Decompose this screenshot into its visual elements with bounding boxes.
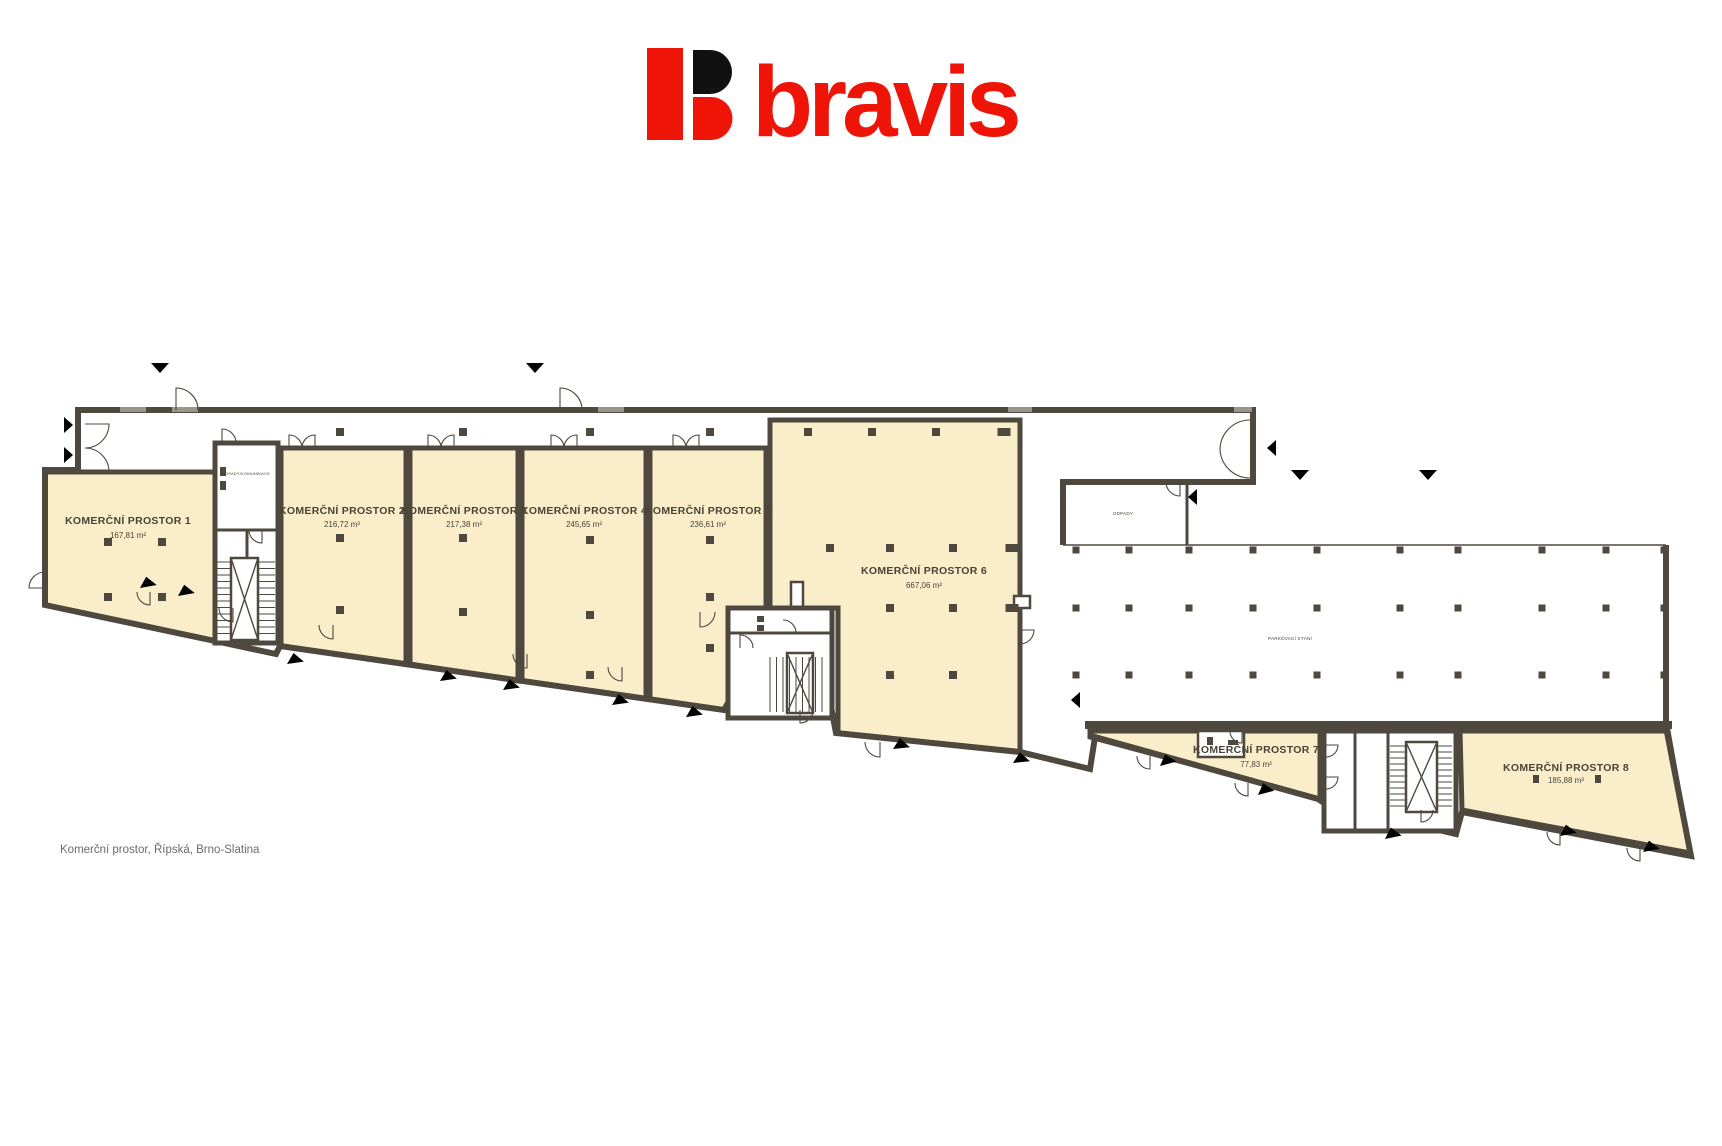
- wall-vent: [120, 407, 146, 412]
- room-4-name: KOMERČNÍ PROSTOR 4: [521, 504, 647, 517]
- column: [886, 604, 894, 612]
- room-2-name: KOMERČNÍ PROSTOR 2: [279, 504, 405, 517]
- column: [1533, 775, 1539, 783]
- column: [998, 428, 1011, 436]
- column: [459, 428, 467, 436]
- fixture: [757, 625, 764, 631]
- arrow-down-icon: [526, 363, 544, 373]
- arrow-down-icon: [1419, 470, 1437, 480]
- column: [706, 428, 714, 436]
- arrow-down-icon: [1291, 470, 1309, 480]
- door-swing-icon: [176, 388, 198, 410]
- column: [886, 671, 894, 679]
- parking-tick: [1539, 605, 1546, 612]
- floor-plan-canvas: bravis: [0, 0, 1722, 1146]
- arrow-right-icon: [64, 447, 73, 463]
- parking-tick: [1397, 547, 1404, 554]
- parking-tick: [1073, 605, 1080, 612]
- column: [949, 544, 957, 552]
- room-8-area: 185,88 m²: [1548, 776, 1584, 785]
- room-1-name: KOMERČNÍ PROSTOR 1: [65, 514, 191, 527]
- column: [886, 544, 894, 552]
- fixture: [757, 616, 764, 622]
- stairwell-east: [1324, 731, 1456, 831]
- facade-arrow-icon: [286, 652, 304, 664]
- room-8-name: KOMERČNÍ PROSTOR 8: [1503, 761, 1629, 774]
- door-swing-icon: [1627, 848, 1640, 861]
- room-7-area: 77,83 m²: [1240, 760, 1272, 769]
- parking-tick: [1073, 547, 1080, 554]
- parking-tick: [1661, 605, 1668, 612]
- parking-tick: [1539, 672, 1546, 679]
- parking-bottom-wall: [1085, 721, 1672, 729]
- parking-tick: [1186, 672, 1193, 679]
- plan-caption: Komerční prostor, Řípská, Brno-Slatina: [60, 843, 260, 856]
- parking-tick: [1314, 605, 1321, 612]
- column: [586, 536, 594, 544]
- logo-red-bar: [647, 48, 683, 140]
- column: [949, 604, 957, 612]
- column: [868, 428, 876, 436]
- parking-tick: [1314, 672, 1321, 679]
- logo-b-top-bowl-icon: [693, 50, 732, 94]
- parking-tick: [1397, 672, 1404, 679]
- door-swing-icon: [1547, 832, 1560, 845]
- column: [706, 644, 714, 652]
- column: [459, 534, 467, 542]
- column: [586, 428, 594, 436]
- wall-vent: [1234, 407, 1252, 412]
- room-3-name: KOMERČNÍ PROSTOR 3: [401, 504, 527, 517]
- door-swing-icon: [1235, 783, 1248, 796]
- parking-tick: [1455, 605, 1462, 612]
- column: [104, 593, 112, 601]
- room-3-area: 217,38 m²: [446, 520, 482, 529]
- room-2-shape: [281, 448, 406, 664]
- parking-tick: [1250, 547, 1257, 554]
- column: [1006, 604, 1019, 612]
- parking-tick: [1539, 547, 1546, 554]
- arrow-left-icon: [1267, 440, 1276, 456]
- room-1-shape: [45, 472, 215, 641]
- room-4-area: 245,65 m²: [566, 520, 602, 529]
- room-6-area: 667,06 m²: [906, 581, 942, 590]
- room-5-area: 236,61 m²: [690, 520, 726, 529]
- column: [949, 671, 957, 679]
- parking-tick: [1603, 547, 1610, 554]
- parking-tick: [1186, 605, 1193, 612]
- parking-tick: [1250, 672, 1257, 679]
- floor-plan-page: bravis: [0, 0, 1722, 1146]
- room-4-shape: [522, 448, 646, 699]
- column: [459, 608, 467, 616]
- parking-tick: [1073, 672, 1080, 679]
- column: [804, 428, 812, 436]
- bravis-logo: bravis: [647, 46, 1018, 158]
- parking-tick: [1126, 605, 1133, 612]
- column: [1595, 775, 1601, 783]
- parking-label: PARKOVACÍ STÁNÍ: [1268, 635, 1312, 641]
- parking-tick: [1314, 547, 1321, 554]
- column: [586, 671, 594, 679]
- parking-tick: [1661, 672, 1668, 679]
- column: [336, 534, 344, 542]
- logo-b-bottom-bowl-icon: [693, 97, 733, 140]
- column: [158, 538, 166, 546]
- arrow-down-icon: [151, 363, 169, 373]
- parking-tick: [1126, 547, 1133, 554]
- column: [932, 428, 940, 436]
- wall-vent: [598, 407, 624, 412]
- room-6-name: KOMERČNÍ PROSTOR 6: [861, 564, 987, 577]
- fixture: [220, 481, 226, 490]
- waste-label: ODPADY: [1113, 511, 1133, 516]
- column: [826, 544, 834, 552]
- room-2-area: 216,72 m²: [324, 520, 360, 529]
- door-swing-icon: [1137, 756, 1150, 769]
- column: [336, 606, 344, 614]
- door-swing-icon: [865, 742, 880, 757]
- column: [586, 611, 594, 619]
- parking-tick: [1603, 605, 1610, 612]
- column: [706, 536, 714, 544]
- door-swing-icon: [560, 388, 582, 410]
- arrow-right-icon: [64, 417, 73, 433]
- column: [158, 593, 166, 601]
- wall-vent: [1008, 407, 1032, 412]
- room-7-name: KOMERČNÍ PROSTOR 7: [1193, 743, 1319, 756]
- room-1-area: 167,81 m²: [110, 531, 146, 540]
- parking-tick: [1455, 547, 1462, 554]
- column: [1006, 544, 1019, 552]
- waste-room-label: ODPADY/KOMUNIKACE: [222, 471, 270, 476]
- brand-wordmark: bravis: [752, 46, 1018, 158]
- parking-tick: [1397, 605, 1404, 612]
- column: [706, 593, 714, 601]
- parking-tick: [1661, 547, 1668, 554]
- room-3-shape: [410, 448, 518, 681]
- column: [336, 428, 344, 436]
- parking-tick: [1126, 672, 1133, 679]
- parking-tick: [1250, 605, 1257, 612]
- parking-tick: [1455, 672, 1462, 679]
- arrow-left-icon: [1188, 489, 1197, 505]
- room-5-name: KOMERČNÍ PROSTOR 5: [645, 504, 771, 517]
- parking-tick: [1603, 672, 1610, 679]
- parking-tick: [1186, 547, 1193, 554]
